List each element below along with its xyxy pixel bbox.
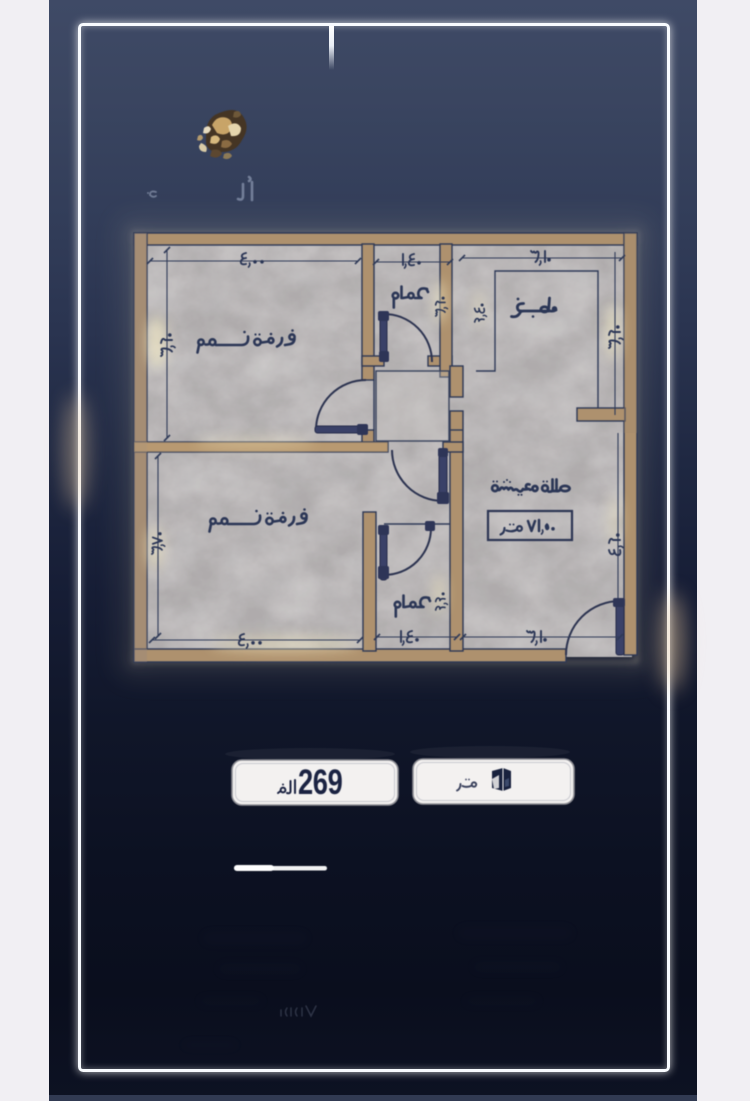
svg-text:269: 269 [298, 763, 342, 802]
